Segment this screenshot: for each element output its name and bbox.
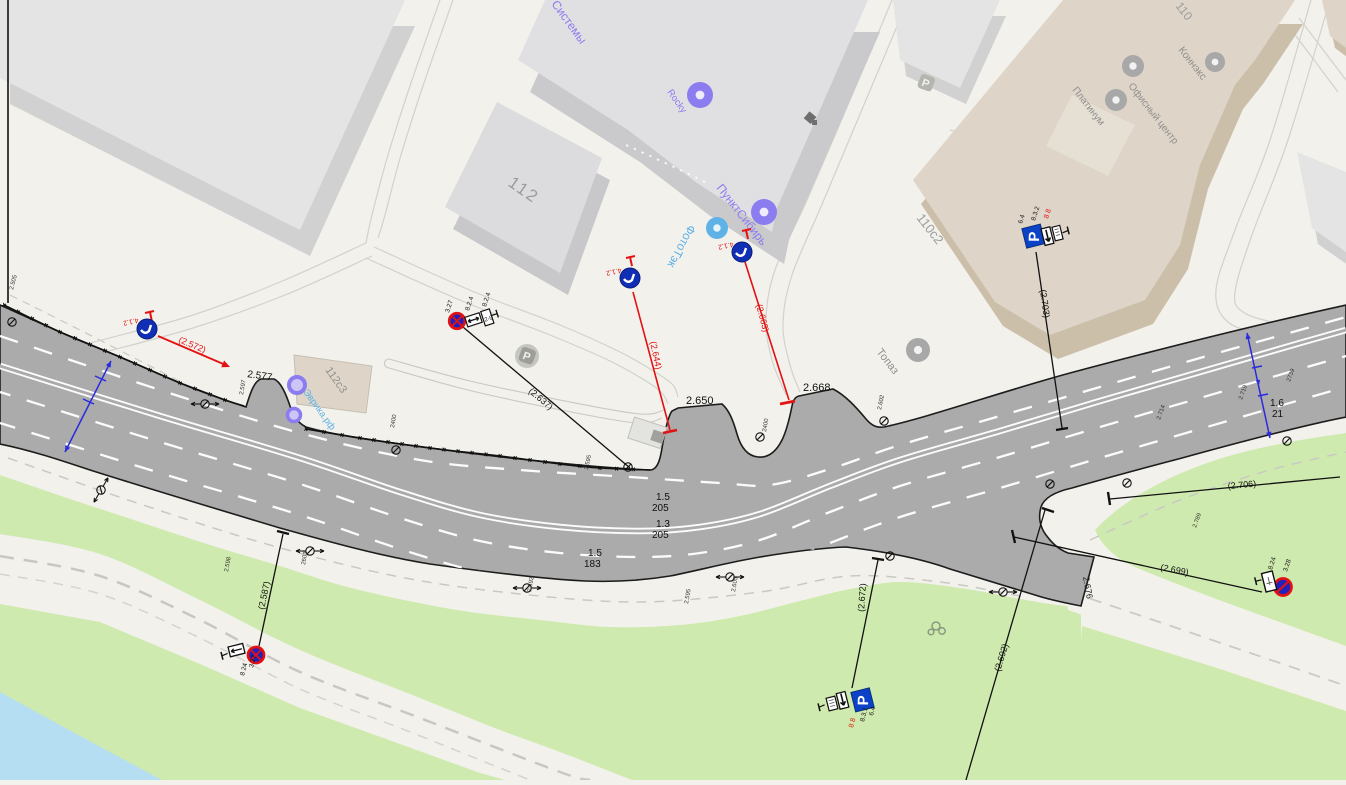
svg-text:21: 21 (1272, 409, 1284, 420)
svg-text:1.6: 1.6 (1270, 398, 1284, 409)
svg-text:1.5: 1.5 (656, 492, 670, 503)
svg-text:183: 183 (584, 559, 601, 570)
svg-text:1.3: 1.3 (656, 519, 670, 530)
svg-text:205: 205 (652, 503, 669, 514)
svg-text:205: 205 (652, 530, 669, 541)
svg-text:P: P (1026, 231, 1043, 241)
svg-text:P: P (855, 695, 872, 705)
svg-text:2.650: 2.650 (686, 395, 714, 407)
svg-text:1.5: 1.5 (588, 548, 602, 559)
svg-text:2.668: 2.668 (803, 382, 831, 394)
svg-text:(2.672): (2.672) (856, 583, 868, 612)
